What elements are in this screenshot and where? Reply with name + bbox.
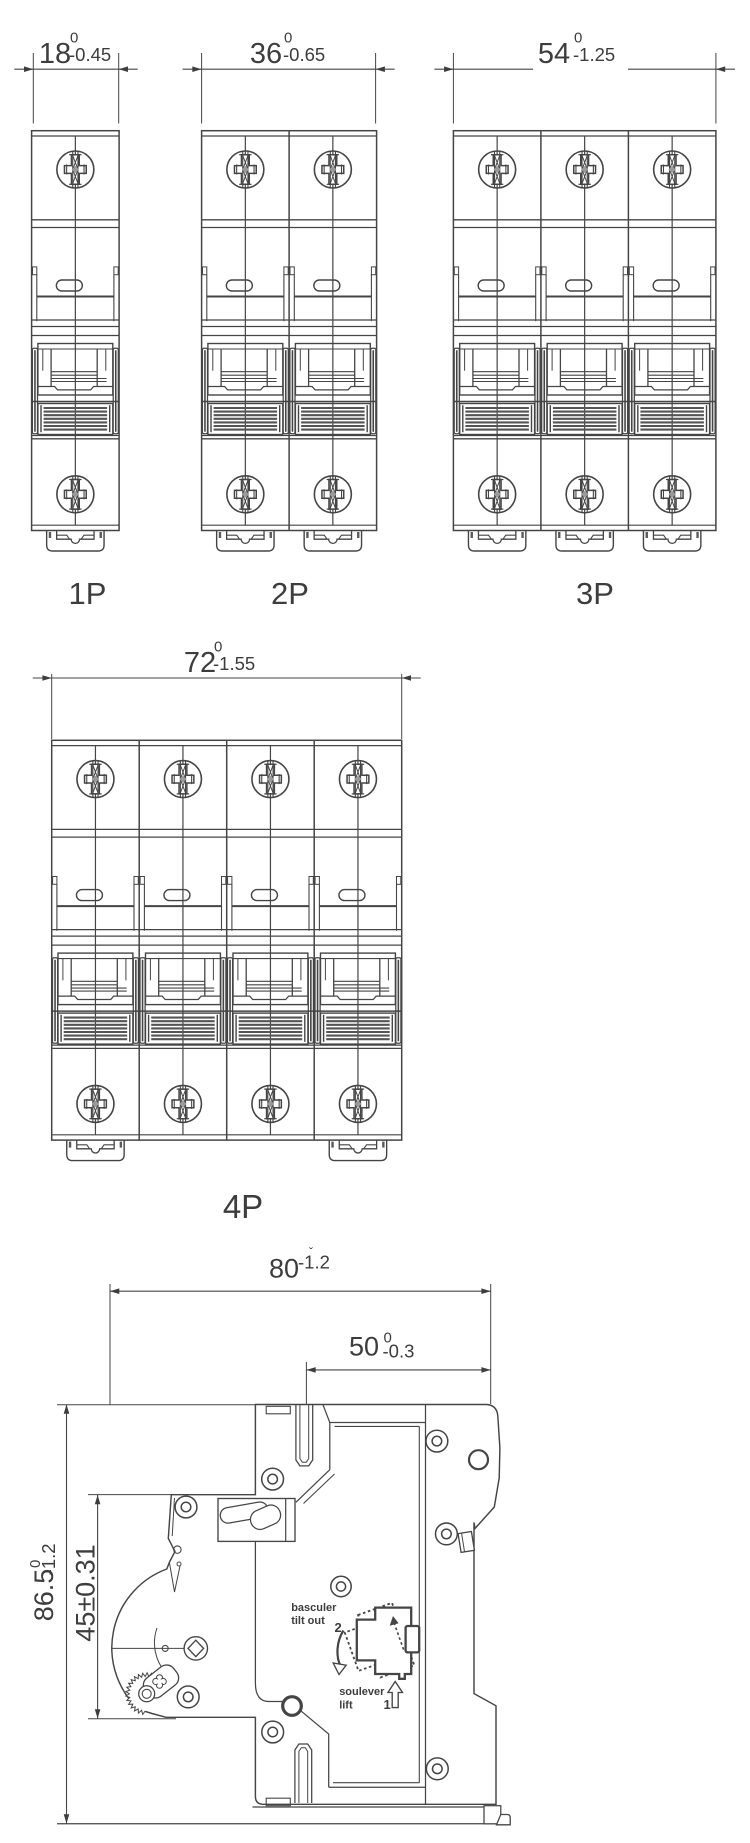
svg-text:-0.3: -0.3 [383,1341,415,1362]
svg-text:-0.45: -0.45 [69,44,111,65]
svg-text:1: 1 [384,1697,391,1712]
svg-text:3P: 3P [576,576,614,611]
svg-text:-1.2: -1.2 [38,1543,59,1575]
svg-text:1P: 1P [69,576,107,611]
svg-text:-1.55: -1.55 [213,653,255,674]
svg-text:basculer: basculer [291,1602,337,1614]
svg-text:4P: 4P [223,1188,263,1225]
svg-text:lift: lift [339,1700,353,1712]
svg-text:soulever: soulever [339,1686,385,1698]
svg-text:-1.2: -1.2 [298,1252,330,1273]
svg-text:36: 36 [250,38,282,70]
svg-text:80: 80 [269,1253,299,1283]
svg-text:-1.25: -1.25 [573,44,615,65]
svg-text:-0.65: -0.65 [283,44,325,65]
svg-text:50: 50 [349,1331,379,1361]
svg-text:45±0.31: 45±0.31 [71,1544,101,1641]
svg-text:72: 72 [184,647,216,679]
svg-text:54: 54 [538,38,570,70]
svg-text:2P: 2P [271,576,309,611]
svg-text:tilt out: tilt out [291,1615,325,1627]
svg-text:86.5: 86.5 [29,1569,59,1622]
svg-text:18: 18 [39,38,71,70]
svg-text:2: 2 [335,1620,342,1635]
svg-text:ˇ: ˇ [309,1245,313,1259]
